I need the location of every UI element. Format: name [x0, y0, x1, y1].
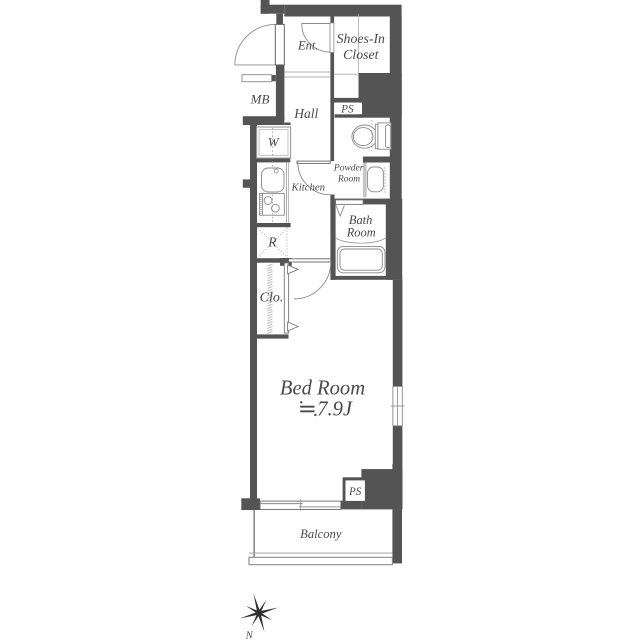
svg-text:Clo.: Clo. [260, 290, 284, 305]
svg-text:Shoes-In: Shoes-In [337, 31, 385, 46]
svg-text:7.9J: 7.9J [317, 398, 353, 420]
svg-text:Room: Room [346, 225, 376, 239]
svg-text:Ent.: Ent. [297, 38, 318, 52]
svg-text:PS: PS [348, 486, 362, 498]
svg-text:Closet: Closet [343, 47, 379, 62]
svg-text:MB: MB [250, 92, 270, 107]
svg-text:Room: Room [337, 174, 360, 184]
svg-text:Powder: Powder [333, 163, 364, 173]
svg-text:Balcony: Balcony [300, 527, 342, 541]
svg-text:PS: PS [340, 104, 354, 116]
svg-text:Kitchen: Kitchen [291, 181, 326, 193]
svg-text:R: R [267, 235, 277, 250]
svg-text:W: W [268, 134, 280, 149]
svg-text:Hall: Hall [293, 106, 318, 121]
svg-text:Bed Room: Bed Room [280, 378, 365, 400]
svg-text:N: N [245, 631, 254, 640]
